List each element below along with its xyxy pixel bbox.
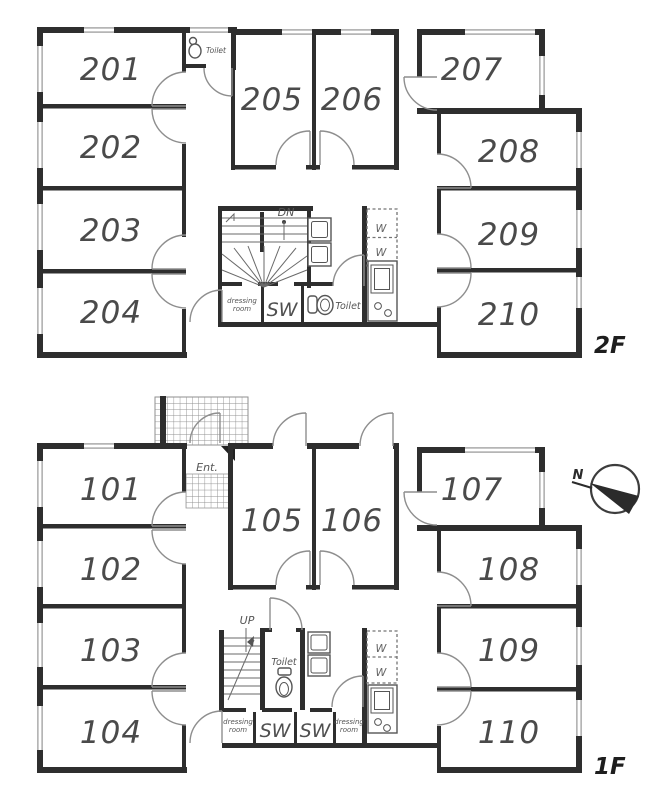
door-209	[437, 234, 471, 268]
floorplan-page: 201 202 203 204 205 206 207 208 209 210 …	[0, 0, 647, 800]
room-206-label: 206	[321, 82, 383, 118]
door-108	[437, 572, 471, 606]
washer-label: W	[376, 246, 388, 259]
washer-label: W	[376, 666, 388, 679]
shower-left-label: SW	[260, 720, 292, 742]
room-108-label: 108	[478, 552, 540, 588]
dressing-room-right-label: room	[340, 726, 358, 734]
door-107	[404, 492, 437, 525]
room-109-label: 109	[478, 633, 540, 669]
shower-label-2f: SW	[267, 299, 299, 321]
door-103	[152, 653, 186, 687]
door-110	[437, 691, 471, 725]
dressing-room-left-label: dressing	[223, 718, 253, 726]
door-201	[152, 72, 186, 106]
door-105	[276, 551, 310, 585]
room-205-label: 205	[241, 82, 303, 118]
toilet-label-2f: Toilet	[335, 301, 362, 312]
washing-machine-icon	[308, 218, 331, 266]
room-101-label: 101	[80, 472, 142, 508]
door-exterior-105	[273, 413, 306, 446]
stairs-up-label: UP	[240, 614, 255, 627]
door-exterior-106	[360, 413, 393, 446]
washing-machine-icon	[308, 632, 330, 676]
toilet-icon-2f	[308, 296, 333, 315]
washer-label: W	[376, 642, 388, 655]
door-208	[437, 154, 471, 188]
room-207-label: 207	[441, 52, 503, 88]
door-toilet-1f	[270, 598, 302, 630]
room-202-label: 202	[80, 130, 142, 166]
floor-1f: 101 102 103 104 105 106 107 108 109 110 …	[37, 396, 626, 780]
door-hall-1f	[190, 711, 222, 743]
floor-2f-label: 2F	[594, 333, 626, 359]
stairs-2f	[222, 214, 307, 287]
stairs-1f	[224, 628, 260, 700]
door-alcove-1f	[332, 676, 363, 707]
toilet-icon-2f-upper	[189, 38, 201, 59]
floor-1f-label: 1F	[594, 754, 626, 780]
door-hall-2f	[190, 290, 222, 322]
entrance-area	[155, 397, 248, 508]
porch-tile	[155, 397, 248, 445]
room-107-label: 107	[441, 472, 503, 508]
shower-right-label: SW	[300, 720, 332, 742]
room-104-label: 104	[80, 715, 142, 751]
room-208-label: 208	[478, 134, 540, 170]
kitchen-unit-1f	[368, 685, 397, 733]
door-206	[320, 131, 354, 165]
floor-2f: 201 202 203 204 205 206 207 208 209 210 …	[37, 27, 626, 359]
toilet-upper-label-2f: Toilet	[206, 46, 227, 55]
entrance-tile	[186, 474, 231, 508]
compass: N	[572, 465, 639, 514]
room-103-label: 103	[80, 633, 142, 669]
door-205	[276, 131, 310, 165]
door-102	[152, 530, 186, 564]
room-209-label: 209	[478, 217, 540, 253]
door-207	[404, 77, 437, 110]
dressing-room-label-2f: room	[233, 305, 251, 313]
door-toilet-2f-upper	[204, 68, 232, 96]
door-toilet-2f	[333, 255, 364, 286]
entrance-label: Ent.	[196, 461, 218, 474]
dressing-room-label-2f: dressing	[227, 297, 257, 305]
toilet-label-1f: Toilet	[271, 657, 298, 668]
door-101	[152, 492, 186, 526]
washer-label: W	[376, 222, 388, 235]
floorplan-canvas: 201 202 203 204 205 206 207 208 209 210 …	[0, 0, 647, 800]
dressing-room-left-label: room	[229, 726, 247, 734]
door-203	[152, 235, 186, 269]
kitchen-unit-2f	[368, 261, 397, 321]
north-label: N	[573, 468, 584, 483]
door-202	[152, 109, 186, 143]
room-110-label: 110	[478, 715, 540, 751]
door-104	[152, 691, 186, 725]
toilet-icon-1f	[276, 668, 292, 697]
room-102-label: 102	[80, 552, 142, 588]
room-106-label: 106	[321, 503, 383, 539]
room-201-label: 201	[80, 52, 142, 88]
door-204	[152, 274, 186, 308]
room-105-label: 105	[241, 503, 303, 539]
door-109	[437, 653, 471, 687]
room-210-label: 210	[478, 297, 540, 333]
dressing-room-right-label: dressing	[334, 718, 364, 726]
room-203-label: 203	[80, 213, 142, 249]
door-106	[320, 551, 354, 585]
room-204-label: 204	[80, 295, 142, 331]
stairs-dn-label: DN	[278, 206, 295, 219]
door-210	[437, 273, 471, 307]
